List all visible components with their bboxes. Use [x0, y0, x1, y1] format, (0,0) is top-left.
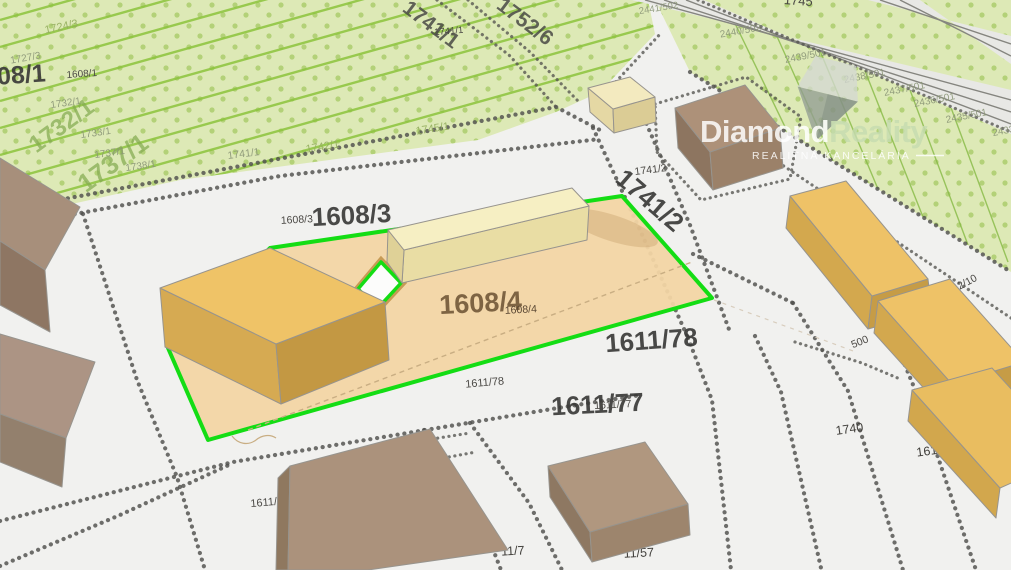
parcel-label: 1608/1	[66, 68, 98, 81]
parcel-label: 1611/	[250, 496, 279, 510]
parcel-label: 1608/3	[311, 198, 392, 232]
map-canvas: 1724/31727/31608/11608/11732/11732/11733…	[0, 0, 1011, 570]
brand-text: DiamondReality	[700, 114, 929, 149]
parcel-label: 1608/3	[280, 213, 313, 227]
parcel-label: 1608/4	[504, 303, 537, 317]
cadastral-map-3d-view: 1724/31727/31608/11608/11732/11732/11733…	[0, 0, 1011, 570]
brand-part-reality: Reality	[829, 114, 928, 149]
brand-tagline: REALITNÁ KANCELÁRIA	[752, 149, 911, 162]
parcel-label: 1611/77	[594, 398, 632, 412]
parcel-label: 1608/1	[0, 59, 47, 92]
brand-part-diamond: Diamond	[700, 114, 829, 149]
